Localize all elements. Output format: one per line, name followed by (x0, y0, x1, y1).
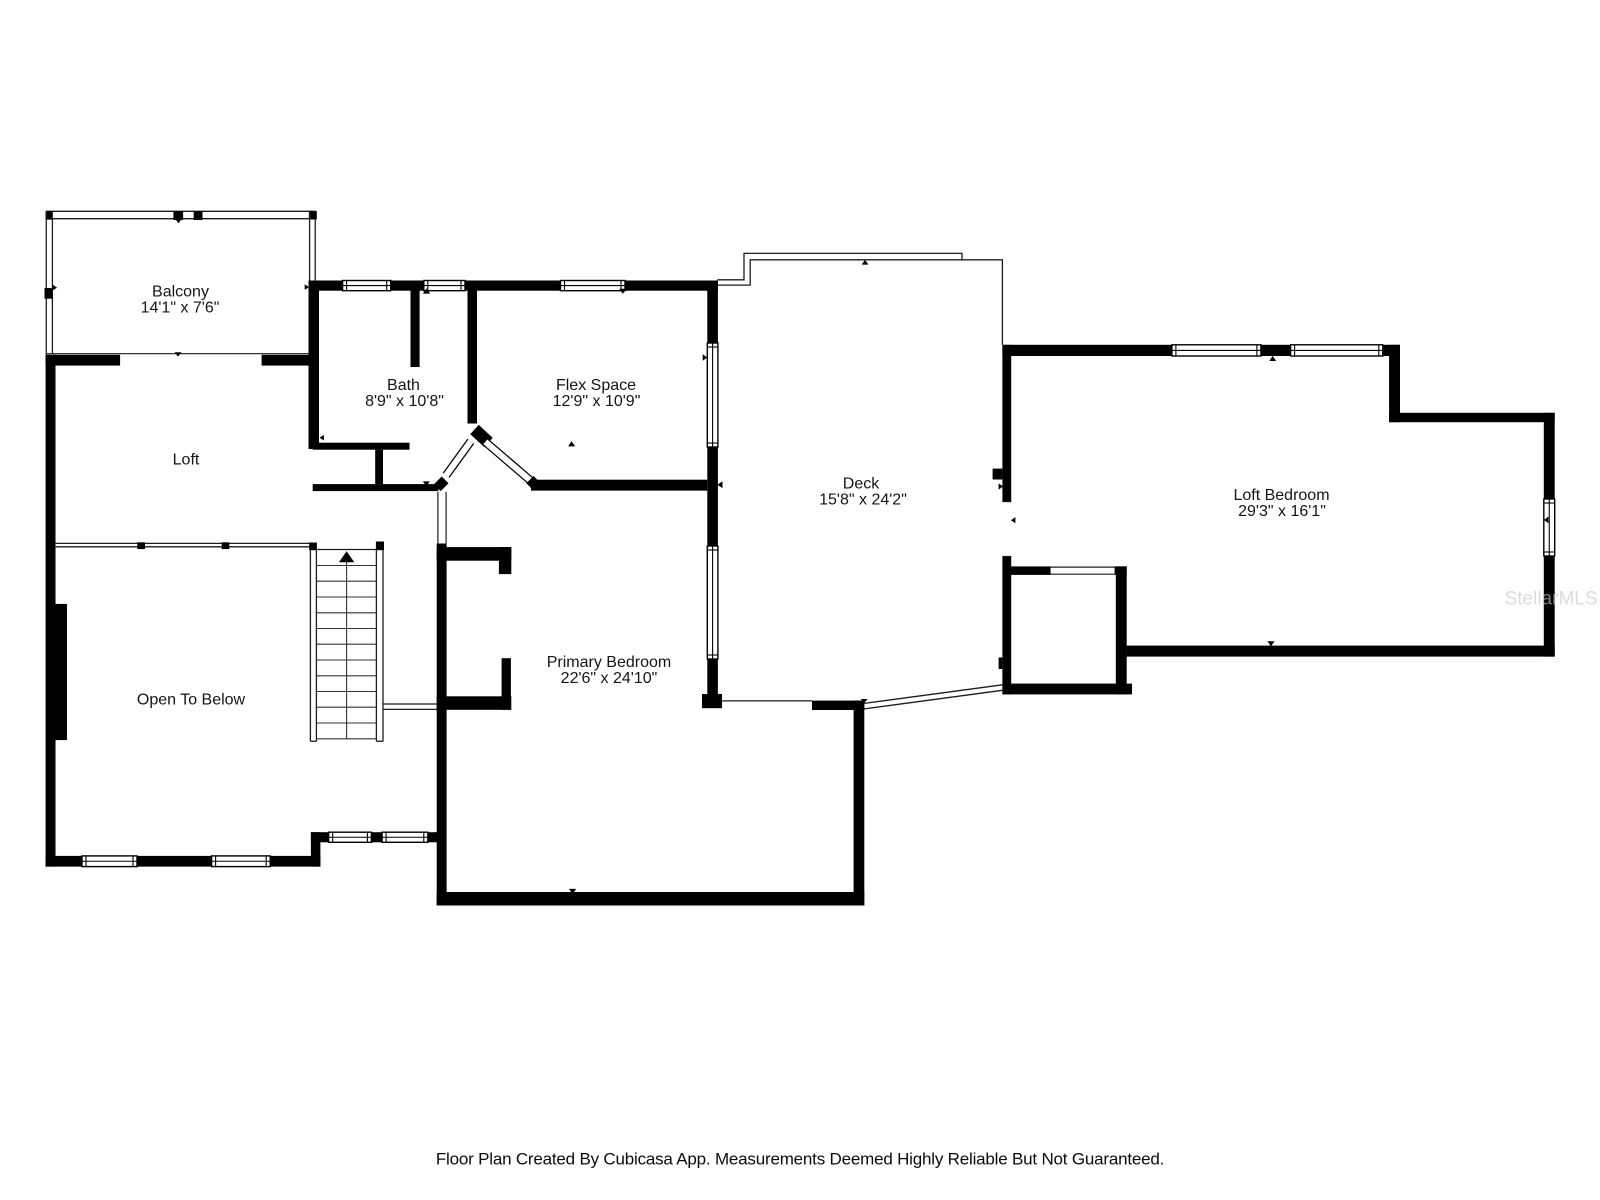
svg-text:Bath: Bath (387, 377, 420, 394)
svg-text:Balcony: Balcony (152, 284, 209, 301)
svg-text:Flex Space: Flex Space (556, 377, 636, 394)
svg-text:15'8" x 24'2": 15'8" x 24'2" (819, 492, 907, 509)
svg-text:Open To Below: Open To Below (137, 692, 246, 709)
svg-text:14'1" x 7'6": 14'1" x 7'6" (141, 300, 220, 317)
svg-text:22'6" x 24'10": 22'6" x 24'10" (561, 670, 658, 687)
svg-text:8'9" x 10'8": 8'9" x 10'8" (365, 393, 444, 410)
svg-text:Floor Plan Created By Cubicasa: Floor Plan Created By Cubicasa App. Meas… (436, 1150, 1164, 1169)
svg-text:StellarMLS: StellarMLS (1505, 589, 1598, 610)
svg-text:Loft: Loft (173, 452, 200, 469)
svg-text:Deck: Deck (843, 476, 880, 493)
svg-text:29'3" x 16'1": 29'3" x 16'1" (1238, 503, 1326, 520)
svg-text:Loft Bedroom: Loft Bedroom (1233, 487, 1329, 504)
svg-text:Primary Bedroom: Primary Bedroom (547, 654, 671, 671)
svg-text:12'9" x 10'9": 12'9" x 10'9" (553, 393, 641, 410)
